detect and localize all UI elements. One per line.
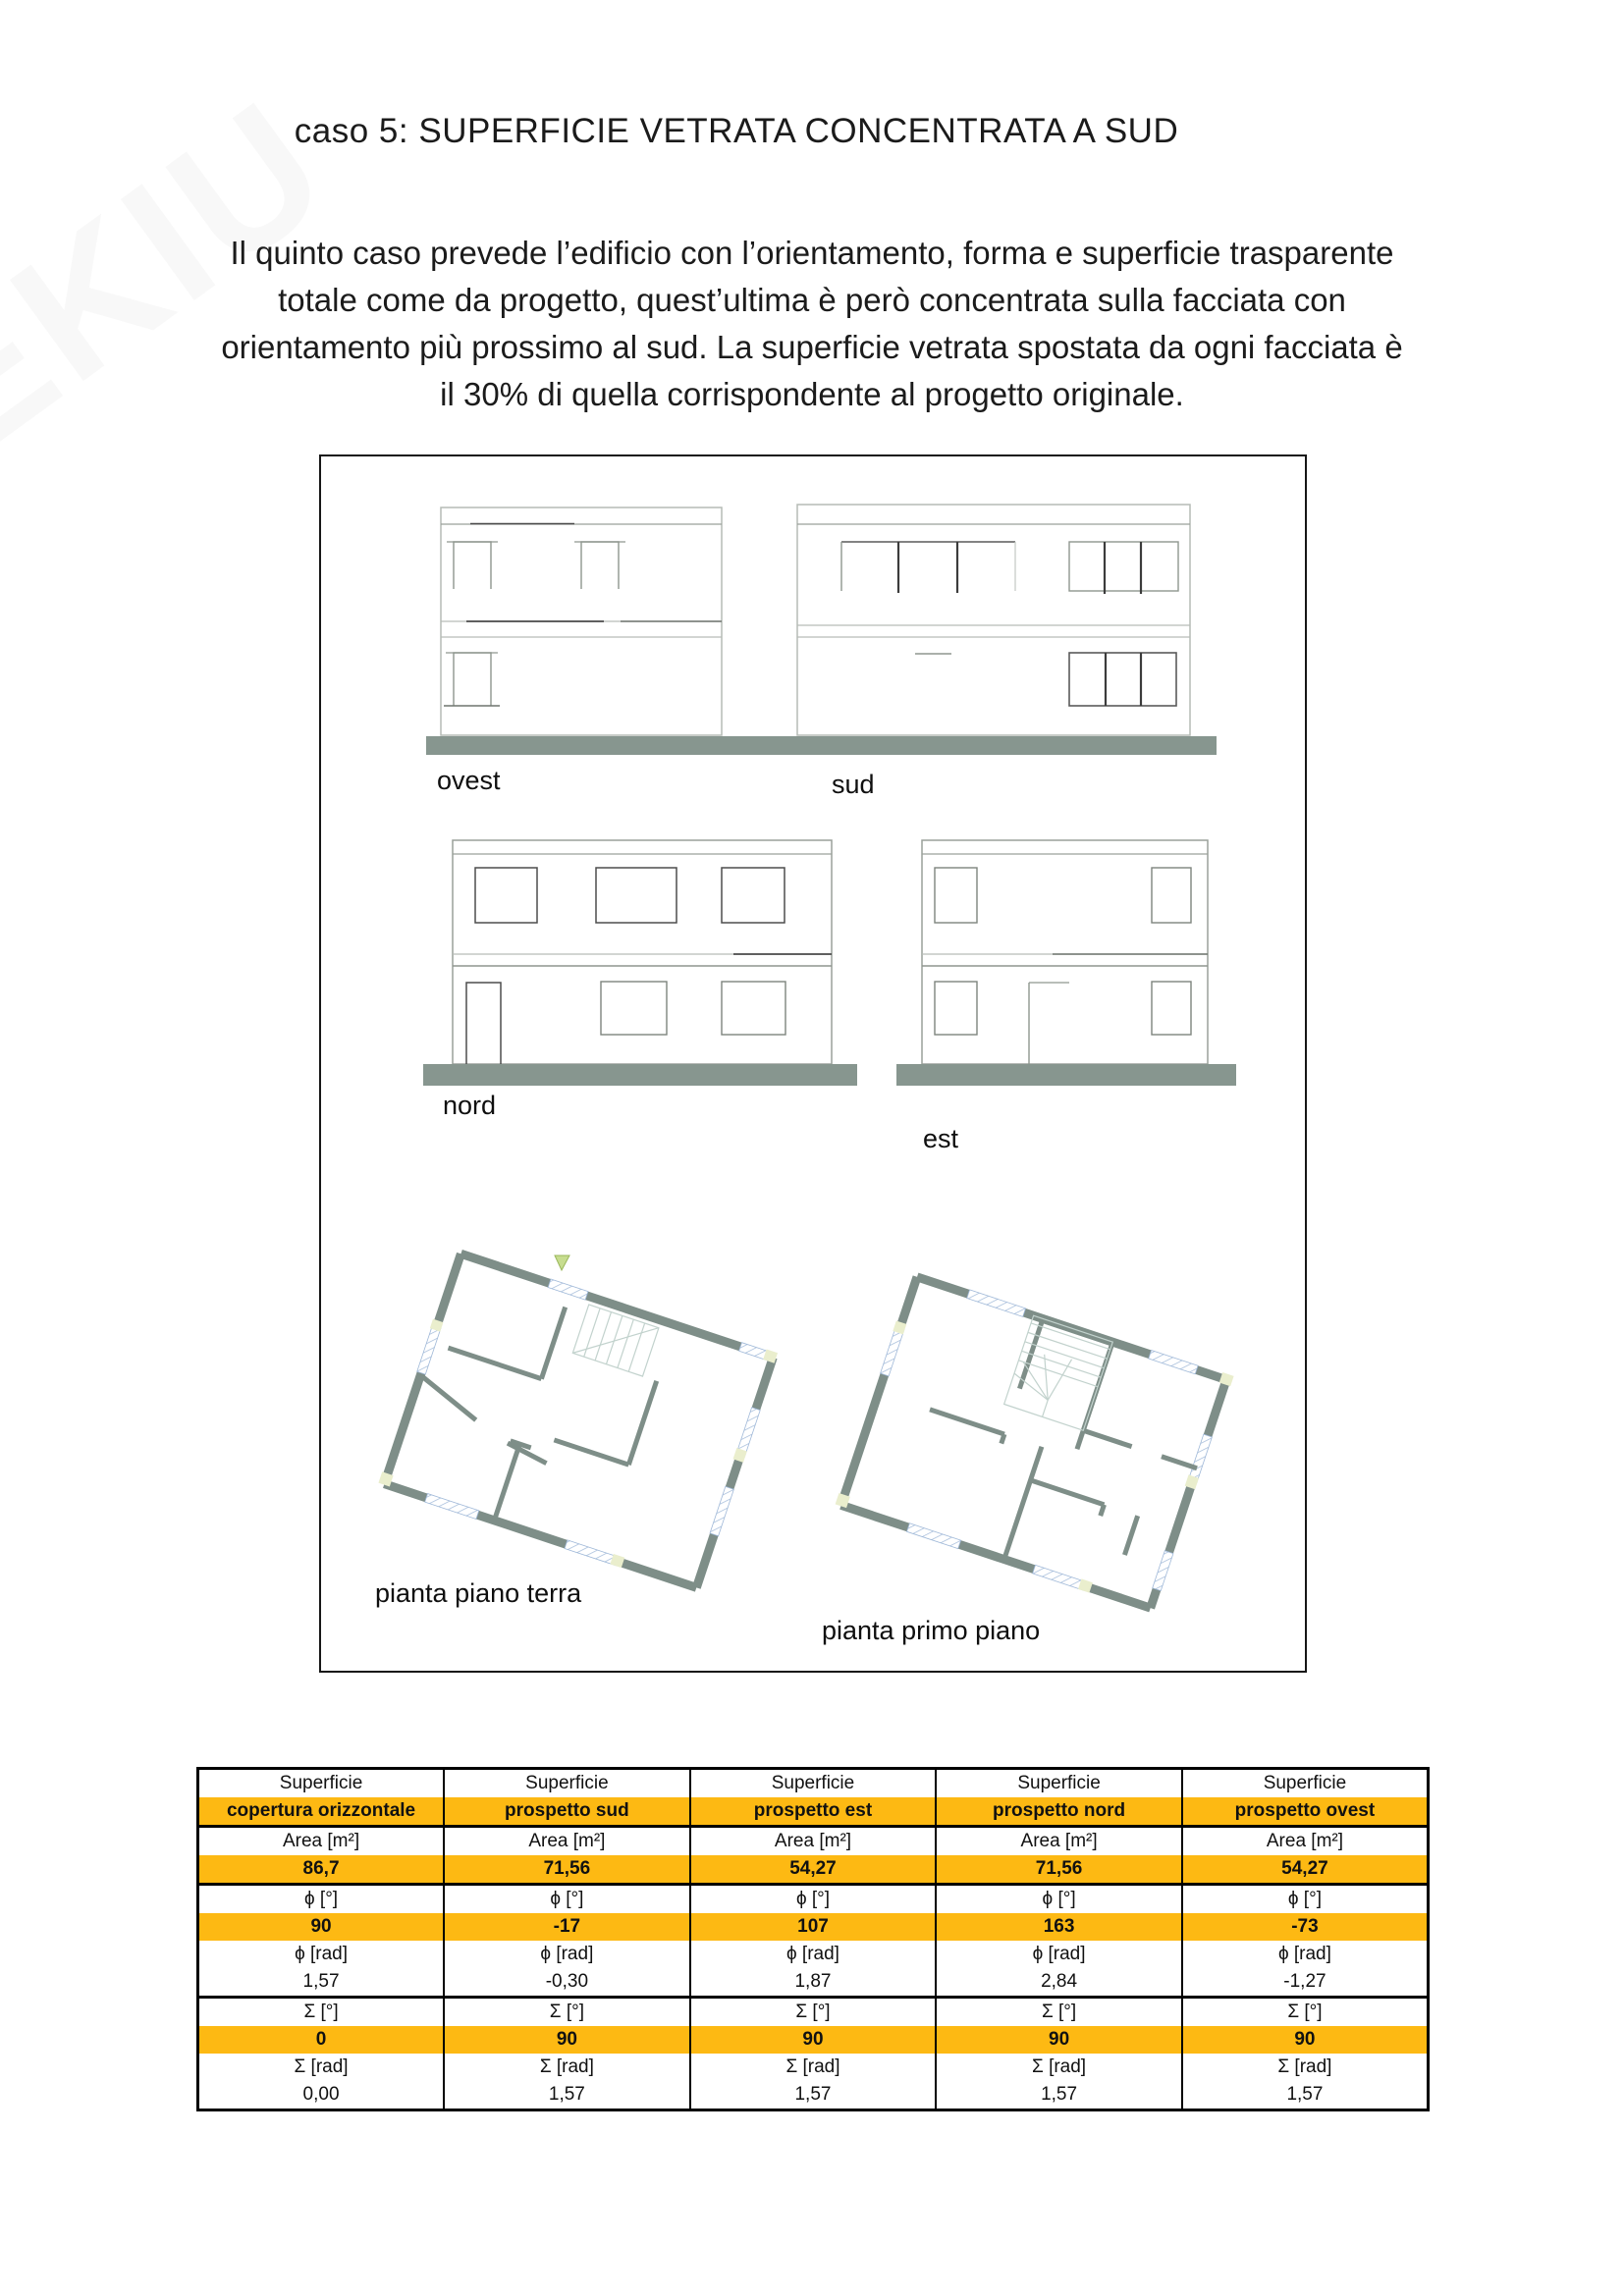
table-cell: Area [m²] bbox=[936, 1827, 1182, 1856]
ground-bar bbox=[896, 1064, 1236, 1086]
table-cell: Area [m²] bbox=[444, 1827, 690, 1856]
elevation-label-sud: sud bbox=[832, 767, 875, 802]
ground-bar bbox=[423, 1064, 857, 1086]
table-cell: -73 bbox=[1182, 1913, 1429, 1941]
intro-paragraph: Il quinto caso prevede l’edificio con l’… bbox=[0, 230, 1624, 418]
table-cell: Superficie bbox=[690, 1769, 937, 1798]
table-cell: 90 bbox=[198, 1913, 445, 1941]
architectural-drawings bbox=[321, 456, 1305, 1671]
table-cell: 54,27 bbox=[690, 1855, 937, 1885]
table-cell: ϕ [rad] bbox=[936, 1941, 1182, 1968]
table-cell: 90 bbox=[1182, 2026, 1429, 2054]
plan-piano-terra bbox=[377, 1247, 780, 1594]
document-page: { "page": { "title": "caso 5: SUPERFICIE… bbox=[0, 0, 1624, 2296]
table-row: 90 -17 107 163 -73 bbox=[198, 1913, 1429, 1941]
table-cell: -17 bbox=[444, 1913, 690, 1941]
table-cell: 90 bbox=[444, 2026, 690, 2054]
table-cell: 1,57 bbox=[444, 2081, 690, 2110]
table-cell: 1,87 bbox=[690, 1968, 937, 1998]
table-cell: ϕ [rad] bbox=[690, 1941, 937, 1968]
table-cell: 71,56 bbox=[444, 1855, 690, 1885]
surface-data-table: Superficie Superficie Superficie Superfi… bbox=[196, 1767, 1430, 2111]
table-cell: -0,30 bbox=[444, 1968, 690, 1998]
table-row: ϕ [°] ϕ [°] ϕ [°] ϕ [°] ϕ [°] bbox=[198, 1885, 1429, 1914]
table-cell: Σ [rad] bbox=[198, 2054, 445, 2081]
table-cell: ϕ [rad] bbox=[1182, 1941, 1429, 1968]
table-cell: Area [m²] bbox=[1182, 1827, 1429, 1856]
table-cell: ϕ [rad] bbox=[444, 1941, 690, 1968]
north-marker-icon bbox=[555, 1255, 569, 1270]
table-cell: prospetto est bbox=[690, 1797, 937, 1827]
table-cell: Σ [rad] bbox=[936, 2054, 1182, 2081]
ground-bar bbox=[426, 736, 750, 755]
table-cell: prospetto ovest bbox=[1182, 1797, 1429, 1827]
table-cell: Σ [°] bbox=[936, 1998, 1182, 2027]
plan-label-piano-terra: pianta piano terra bbox=[375, 1575, 586, 1611]
elevation-label-ovest: ovest bbox=[437, 763, 501, 798]
elevation-sud bbox=[733, 505, 1217, 755]
table-cell: 71,56 bbox=[936, 1855, 1182, 1885]
table-row: Area [m²] Area [m²] Area [m²] Area [m²] … bbox=[198, 1827, 1429, 1856]
elevation-label-nord: nord bbox=[443, 1088, 496, 1123]
table-row: 0,00 1,57 1,57 1,57 1,57 bbox=[198, 2081, 1429, 2110]
table-cell: Σ [°] bbox=[1182, 1998, 1429, 2027]
intro-line: orientamento più prossimo al sud. La sup… bbox=[0, 324, 1624, 371]
table-cell: Σ [°] bbox=[444, 1998, 690, 2027]
table-cell: 1,57 bbox=[1182, 2081, 1429, 2110]
table-cell: ϕ [°] bbox=[444, 1885, 690, 1914]
table-cell: Superficie bbox=[444, 1769, 690, 1798]
plan-primo-piano bbox=[834, 1269, 1233, 1614]
page-title: caso 5: SUPERFICIE VETRATA CONCENTRATA A… bbox=[0, 112, 1473, 151]
table-cell: 0,00 bbox=[198, 2081, 445, 2110]
table-cell: 1,57 bbox=[936, 2081, 1182, 2110]
intro-line: Il quinto caso prevede l’edificio con l’… bbox=[0, 230, 1624, 277]
table-cell: Area [m²] bbox=[198, 1827, 445, 1856]
intro-line: totale come da progetto, quest’ultima è … bbox=[0, 277, 1624, 324]
table-cell: Superficie bbox=[198, 1769, 445, 1798]
table-cell: Superficie bbox=[936, 1769, 1182, 1798]
table-cell: ϕ [°] bbox=[1182, 1885, 1429, 1914]
table-row: Σ [rad] Σ [rad] Σ [rad] Σ [rad] Σ [rad] bbox=[198, 2054, 1429, 2081]
table-cell: ϕ [°] bbox=[690, 1885, 937, 1914]
table-cell: 90 bbox=[690, 2026, 937, 2054]
table-cell: 90 bbox=[936, 2026, 1182, 2054]
table-cell: ϕ [°] bbox=[936, 1885, 1182, 1914]
table-cell: 2,84 bbox=[936, 1968, 1182, 1998]
table-cell: Σ [rad] bbox=[1182, 2054, 1429, 2081]
table-row: 0 90 90 90 90 bbox=[198, 2026, 1429, 2054]
figure-frame: ovest sud nord est pianta piano terra pi… bbox=[319, 454, 1307, 1673]
elevation-label-est: est bbox=[923, 1121, 958, 1156]
elevation-ovest bbox=[426, 507, 750, 755]
table-row: Σ [°] Σ [°] Σ [°] Σ [°] Σ [°] bbox=[198, 1998, 1429, 2027]
table-cell: 1,57 bbox=[198, 1968, 445, 1998]
table-cell: copertura orizzontale bbox=[198, 1797, 445, 1827]
table-row: copertura orizzontale prospetto sud pros… bbox=[198, 1797, 1429, 1827]
table-row: Superficie Superficie Superficie Superfi… bbox=[198, 1769, 1429, 1798]
table-cell: Σ [°] bbox=[198, 1998, 445, 2027]
table-cell: 163 bbox=[936, 1913, 1182, 1941]
plan-label-primo-piano: pianta primo piano bbox=[822, 1613, 1234, 1648]
table-cell: -1,27 bbox=[1182, 1968, 1429, 1998]
table-row: 86,7 71,56 54,27 71,56 54,27 bbox=[198, 1855, 1429, 1885]
elevation-est bbox=[896, 840, 1236, 1086]
table-row: 1,57 -0,30 1,87 2,84 -1,27 bbox=[198, 1968, 1429, 1998]
table-cell: Area [m²] bbox=[690, 1827, 937, 1856]
table-cell: Σ [°] bbox=[690, 1998, 937, 2027]
table-cell: Superficie bbox=[1182, 1769, 1429, 1798]
table-cell: ϕ [°] bbox=[198, 1885, 445, 1914]
table-cell: 54,27 bbox=[1182, 1855, 1429, 1885]
table-cell: ϕ [rad] bbox=[198, 1941, 445, 1968]
table-cell: prospetto sud bbox=[444, 1797, 690, 1827]
table-cell: 86,7 bbox=[198, 1855, 445, 1885]
table-cell: prospetto nord bbox=[936, 1797, 1182, 1827]
table-cell: Σ [rad] bbox=[690, 2054, 937, 2081]
intro-line: il 30% di quella corrispondente al proge… bbox=[0, 371, 1624, 418]
ground-bar bbox=[733, 736, 1217, 755]
table-cell: Σ [rad] bbox=[444, 2054, 690, 2081]
table-row: ϕ [rad] ϕ [rad] ϕ [rad] ϕ [rad] ϕ [rad] bbox=[198, 1941, 1429, 1968]
table-cell: 107 bbox=[690, 1913, 937, 1941]
table-cell: 0 bbox=[198, 2026, 445, 2054]
table-cell: 1,57 bbox=[690, 2081, 937, 2110]
elevation-nord bbox=[423, 840, 857, 1086]
